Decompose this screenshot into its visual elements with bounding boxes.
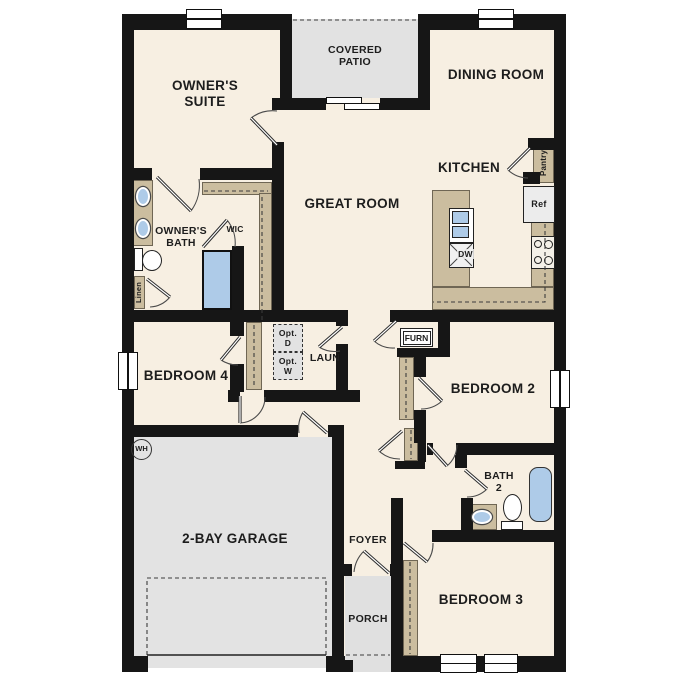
kitchen-south-wall: [438, 310, 554, 322]
toilet-owners-bowl: [142, 250, 162, 271]
label-kitchen: KITCHEN: [419, 160, 519, 176]
label-dw: DW: [457, 249, 474, 259]
label-dining-room: DINING ROOM: [446, 67, 546, 83]
wall-right: [554, 14, 566, 672]
wall-bottom-1: [122, 656, 148, 672]
bed4-east-wall-a: [230, 322, 244, 336]
window-bedroom3-right: [484, 654, 518, 673]
kitchen-counter-bottom: [432, 287, 554, 310]
porch-east-wall: [391, 498, 403, 672]
garage-north-wall-a: [134, 425, 298, 437]
bath2-sink: [472, 510, 492, 524]
suite-south-wall-b: [200, 168, 284, 180]
kitchen-sink: [449, 208, 474, 243]
stove: [531, 236, 555, 269]
label-owners-bath: OWNER'S BATH: [146, 225, 216, 250]
label-owners-suite: OWNER'S SUITE: [150, 78, 260, 110]
wic-shelf-right: [259, 193, 272, 322]
label-wic: WIC: [222, 224, 248, 234]
label-laundry: LAUN: [304, 352, 346, 364]
label-bath2: BATH 2: [480, 470, 518, 495]
window-bedroom2: [550, 370, 570, 408]
bath2-west-stub-b: [461, 498, 473, 530]
hall-closet-strip-1: [246, 322, 262, 390]
closet2-bottom-stub: [395, 461, 425, 469]
label-foyer: FOYER: [344, 534, 392, 546]
shower: [202, 250, 232, 310]
wic-east-wall: [272, 180, 284, 322]
label-bedroom2: BEDROOM 2: [438, 381, 548, 397]
patio-wall-right: [418, 18, 430, 110]
closet2-side-wall: [418, 428, 426, 462]
label-pantry: Pantry: [533, 143, 554, 183]
window-owners-suite: [186, 9, 222, 29]
label-bedroom4: BEDROOM 4: [131, 368, 241, 384]
vanity-sink-1: [136, 187, 150, 206]
floor-plan: WH Opt. D Opt. W FURN: [0, 0, 687, 687]
garage-apron: [147, 656, 326, 668]
mid-band-wall: [122, 310, 348, 322]
wall-bottom-5: [477, 656, 484, 672]
toilet-bath2-tank: [501, 521, 523, 530]
window-dining-room: [478, 9, 514, 29]
foyer-south-wall-a: [332, 564, 352, 576]
patio-wall-left: [280, 18, 292, 110]
label-linen: Linen: [134, 276, 145, 309]
opt-dryer-label: Opt. D: [277, 328, 299, 348]
label-porch: PORCH: [345, 613, 391, 625]
label-covered-patio: COVERED PATIO: [315, 44, 395, 69]
patio-sliding-door-2: [344, 103, 380, 110]
bed2-south-wall-b: [456, 443, 554, 455]
garage-east-wall: [332, 425, 344, 672]
bed2-west-wall-a: [414, 357, 426, 377]
wall-bottom-6: [518, 656, 566, 672]
laun-east-wall-a: [336, 310, 348, 326]
label-great-room: GREAT ROOM: [302, 196, 402, 212]
wall-left: [122, 14, 134, 672]
wall-bottom-3: [345, 660, 353, 672]
bath2-west-stub-a: [455, 455, 467, 468]
furnace-box: FURN: [400, 328, 433, 347]
hall-south-wall-a: [228, 390, 240, 402]
water-heater: WH: [131, 439, 152, 460]
label-bedroom3: BEDROOM 3: [426, 592, 536, 608]
bedroom3-closet-strip: [403, 560, 418, 656]
suite-south-wall-a: [122, 168, 152, 180]
opt-washer-label: Opt. W: [277, 356, 299, 376]
label-garage: 2-BAY GARAGE: [175, 531, 295, 547]
bed2-south-wall-a: [427, 443, 433, 455]
toilet-bath2-bowl: [503, 494, 522, 521]
bathtub: [529, 467, 552, 522]
opt-washer-box: Opt. W: [273, 352, 303, 380]
bedroom2-closet-strip: [399, 357, 414, 420]
furnace-label: FURN: [403, 331, 431, 345]
label-ref: Ref: [523, 199, 555, 210]
bed3-north-wall-a: [397, 530, 403, 542]
patio-wall-bottom-right: [380, 98, 430, 110]
water-heater-label: WH: [135, 445, 148, 454]
window-bedroom3-left: [440, 654, 477, 673]
bed3-north-wall-b: [432, 530, 554, 542]
opt-dryer-box: Opt. D: [273, 324, 303, 352]
furn-south-wall: [397, 348, 450, 357]
shower-side-wall: [232, 246, 244, 310]
patio-wall-bottom-left: [272, 98, 326, 110]
